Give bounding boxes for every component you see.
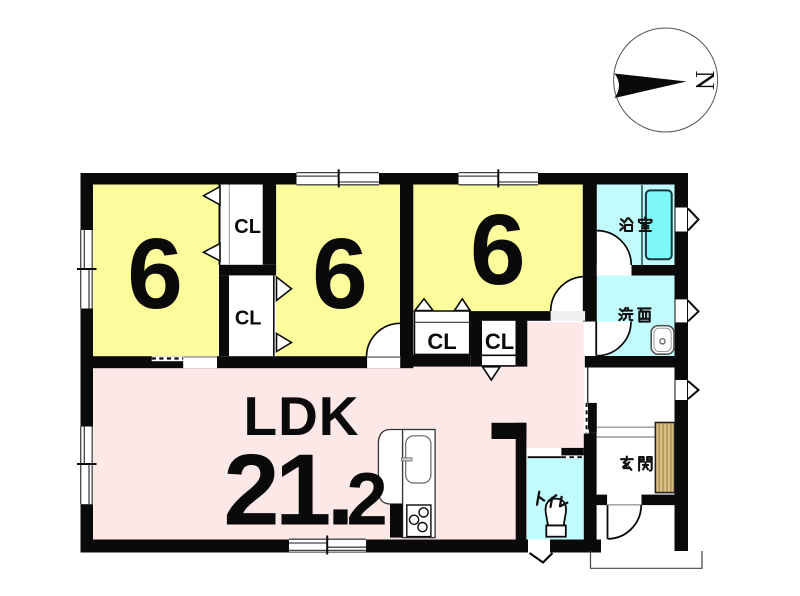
svg-text:CL: CL xyxy=(427,329,456,354)
svg-text:6: 6 xyxy=(312,218,368,330)
svg-text:21: 21 xyxy=(223,435,329,547)
svg-text:N: N xyxy=(690,70,720,90)
svg-text:6: 6 xyxy=(470,194,526,306)
svg-text:CL: CL xyxy=(234,216,261,238)
svg-text:CL: CL xyxy=(235,308,262,330)
svg-text:6: 6 xyxy=(127,218,183,330)
svg-text:2: 2 xyxy=(347,458,388,541)
svg-text:CL: CL xyxy=(485,329,514,354)
